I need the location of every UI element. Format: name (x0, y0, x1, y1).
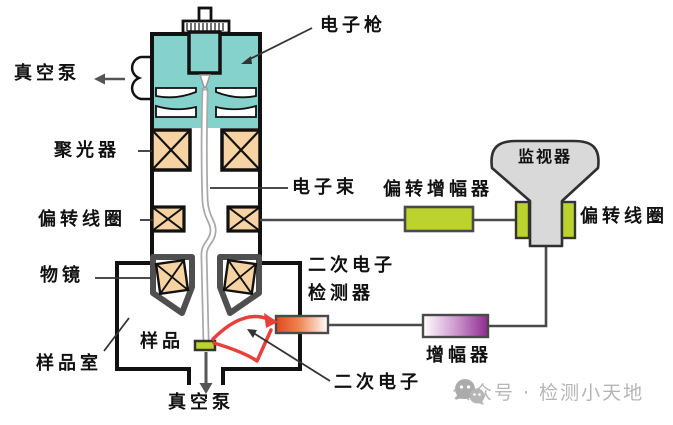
se-detector-box (276, 316, 328, 333)
label-amplifier: 增幅器 (426, 346, 492, 367)
label-objective-lens: 物镜 (40, 266, 84, 287)
label-electron-beam: 电子束 (292, 178, 358, 199)
signal-wires (260, 220, 546, 326)
monitor-coil-right (562, 202, 575, 238)
label-se-detector-line1: 二次电子 (308, 256, 396, 277)
label-deflection-coil-left: 偏转线圈 (38, 210, 126, 231)
vacuum-port-shape (132, 57, 152, 99)
electron-beam-path (204, 92, 213, 340)
label-secondary-electron: 二次电子 (334, 373, 422, 394)
sem-schematic-diagram: 电子枪 真空泵 聚光器 电子束 偏转线圈 物镜 样品 样品室 真空泵 二次电子 … (0, 0, 673, 425)
wechat-icon (452, 378, 488, 406)
label-deflection-coil-right: 偏转线圈 (580, 207, 668, 228)
label-sample: 样品 (140, 332, 184, 353)
monitor-coil-left (516, 202, 529, 238)
label-monitor: 监视器 (495, 148, 595, 166)
label-electron-gun: 电子枪 (320, 16, 386, 37)
sample-stub (195, 341, 215, 350)
gun-housing (189, 32, 220, 73)
watermark: 公众号 · 检测小天地 (452, 378, 644, 405)
label-vacuum-pump-top: 真空泵 (14, 64, 80, 85)
deflection-amplifier-box (405, 207, 473, 231)
label-se-detector-line2: 检测器 (308, 284, 374, 305)
amplifier-box (423, 315, 488, 337)
label-deflection-amplifier: 偏转增幅器 (383, 180, 493, 201)
label-sample-chamber: 样品室 (36, 354, 102, 375)
label-vacuum-pump-bottom: 真空泵 (168, 393, 234, 414)
label-condenser: 聚光器 (54, 141, 120, 162)
